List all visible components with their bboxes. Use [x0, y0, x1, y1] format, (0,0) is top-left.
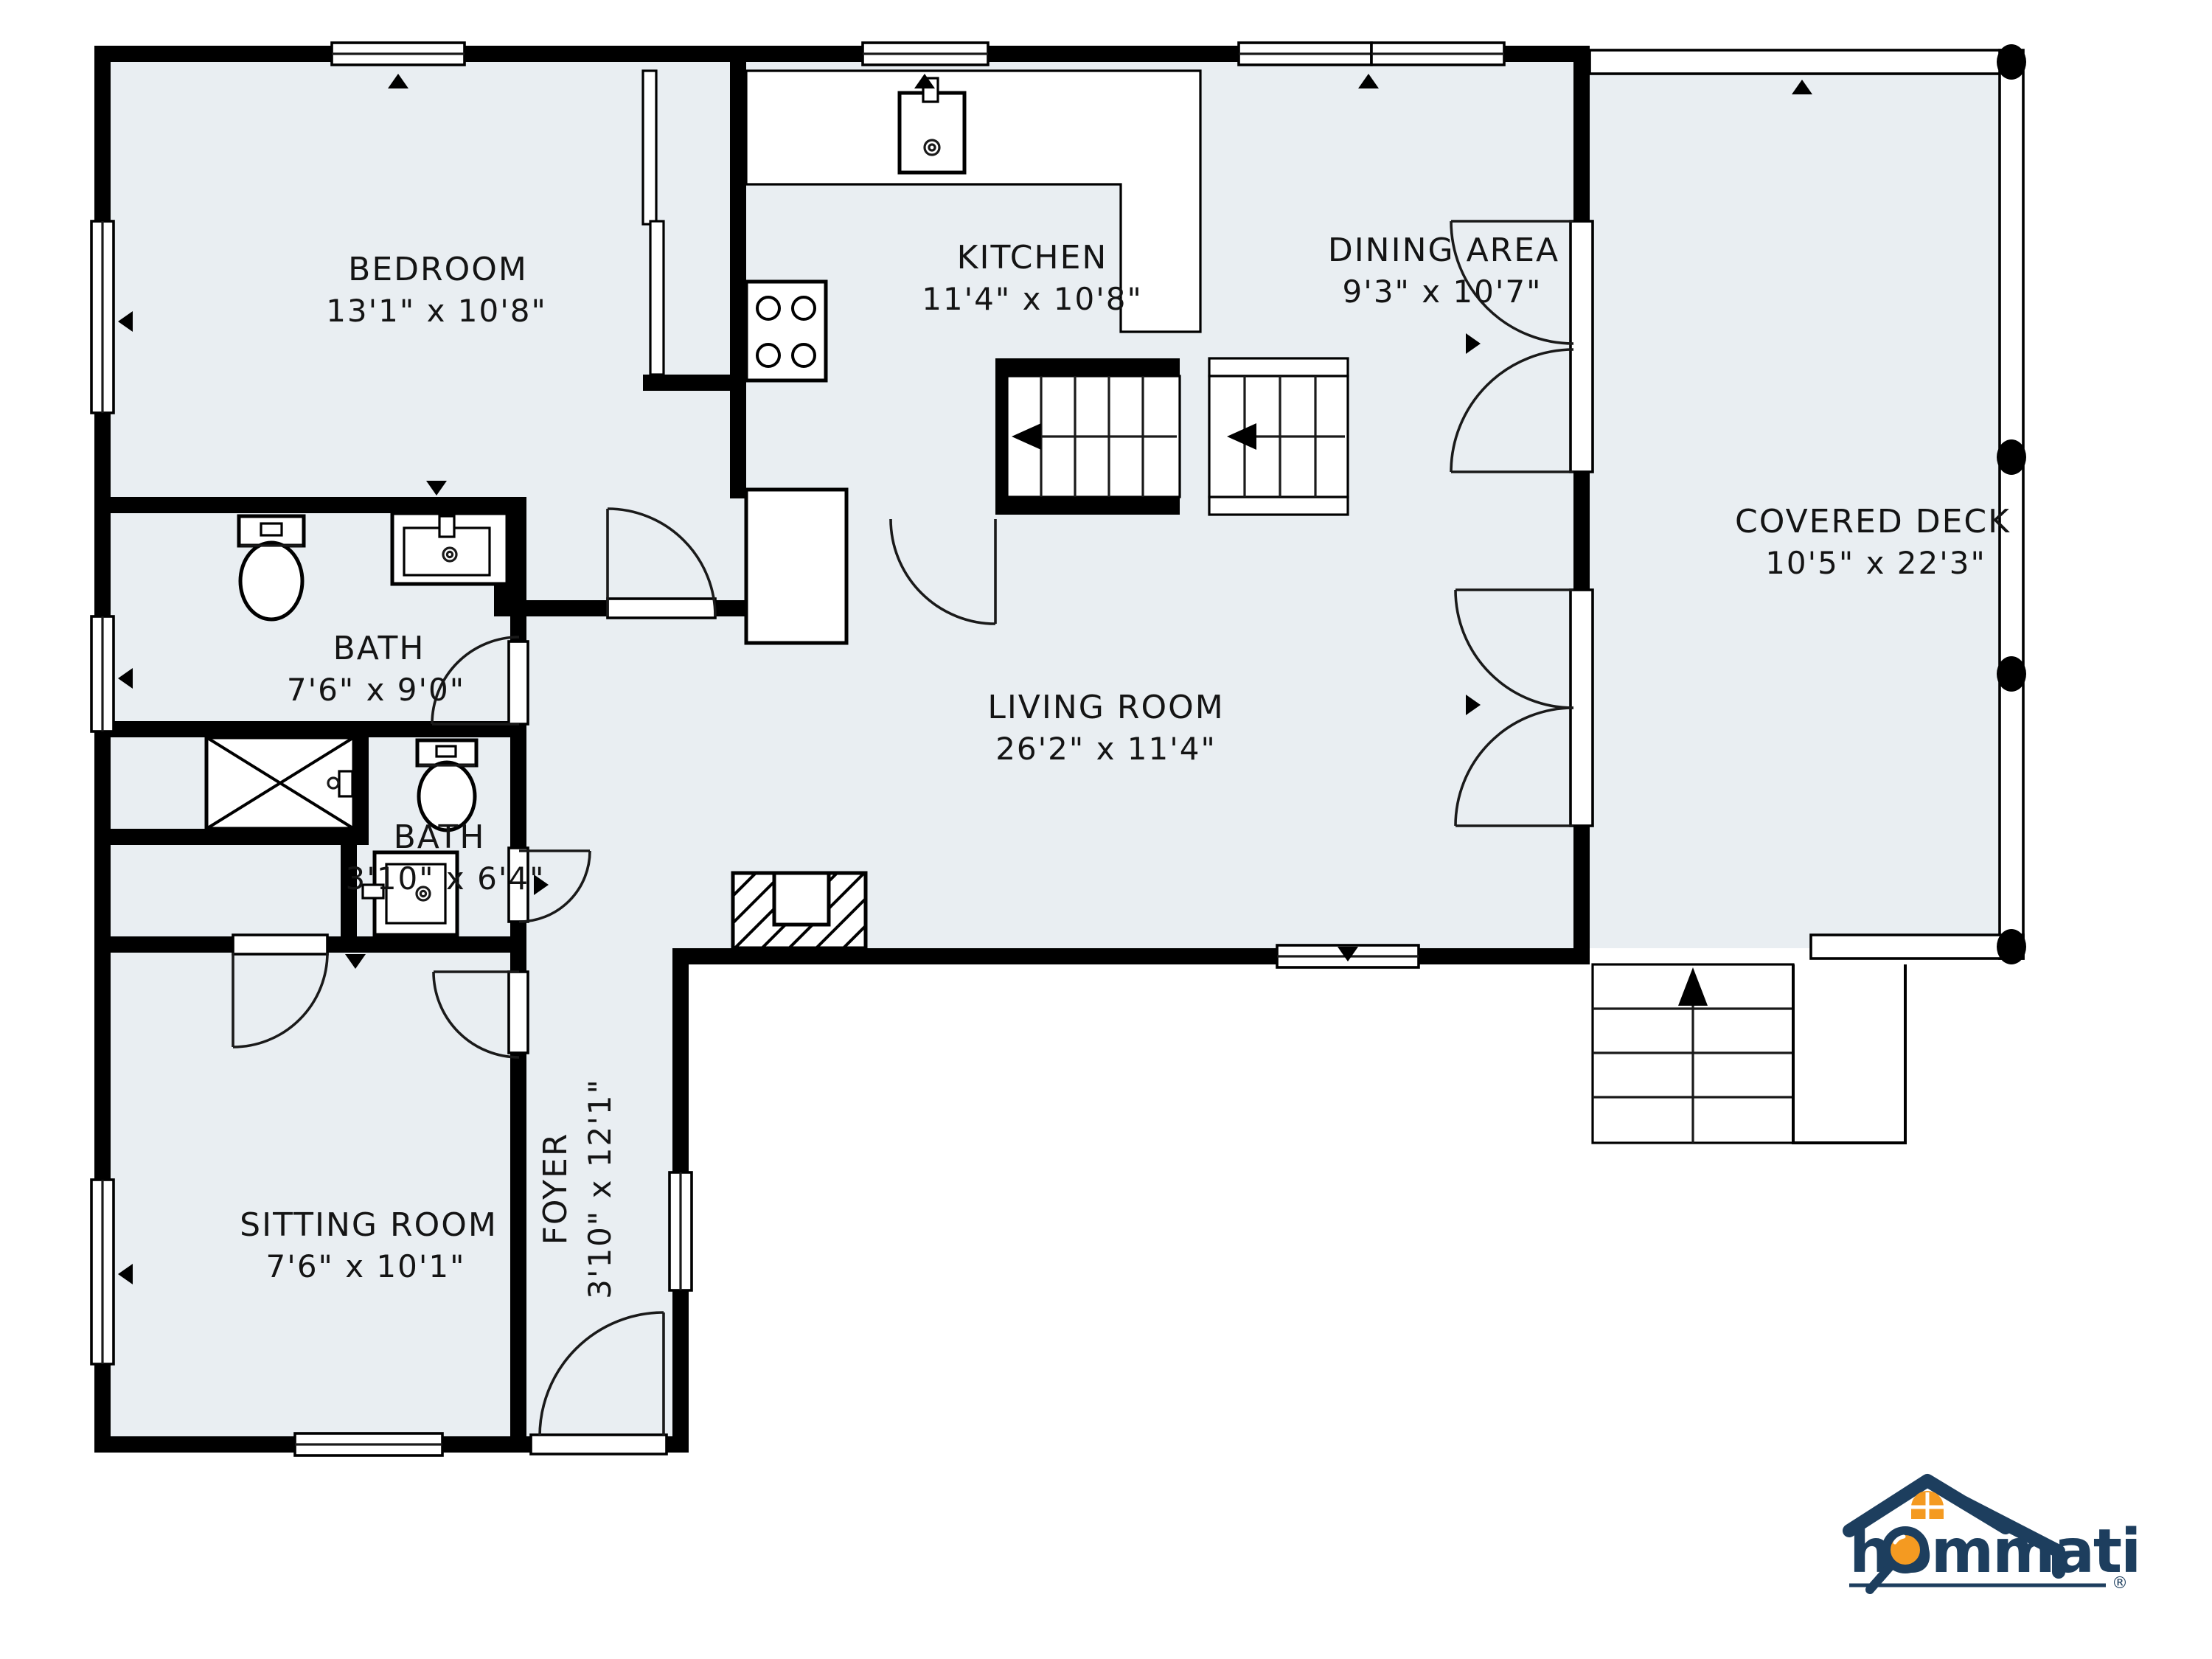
window-icon [332, 43, 465, 65]
foyer-dims: 3'10" x 12'1" [582, 1078, 618, 1299]
hommati-logo: hommati ® [1849, 1481, 2140, 1593]
floor-plan-canvas: BEDROOM 13'1" x 10'8" KITCHEN 11'4" x 10… [0, 0, 2212, 1659]
window-icon [91, 1180, 114, 1364]
shower-icon [206, 737, 354, 829]
deck-label: COVERED DECK [1735, 503, 2011, 540]
deck-post-icon [1997, 929, 2026, 964]
sitting-dims: 7'6" x 10'1" [266, 1248, 466, 1284]
bath1-label: BATH [333, 630, 425, 667]
foyer-label: FOYER [537, 1133, 574, 1245]
bath1-dims: 7'6" x 9'0" [287, 672, 465, 708]
sink-icon [900, 78, 964, 173]
fireplace-icon [733, 873, 866, 948]
kitchen-dims: 11'4" x 10'8" [922, 281, 1143, 317]
toilet-icon [417, 740, 476, 830]
bedroom-dims: 13'1" x 10'8" [326, 293, 547, 329]
window-icon [295, 1433, 442, 1455]
bath2-dims: 3'10" x 6'4" [346, 860, 546, 897]
bath2-label: BATH [394, 818, 486, 856]
deck-post-icon [1997, 656, 2026, 692]
window-icon [863, 43, 988, 65]
deck-dims: 10'5" x 22'3" [1765, 545, 1986, 581]
kitchen-label: KITCHEN [957, 239, 1108, 276]
deck-post-icon [1997, 439, 2026, 475]
deck-post-icon [1997, 44, 2026, 80]
window-icon [91, 616, 114, 731]
deck-stairs-icon [1593, 964, 1905, 1143]
toilet-icon [239, 516, 304, 619]
dining-dims: 9'3" x 10'7" [1343, 274, 1543, 310]
refrigerator-icon [746, 490, 846, 643]
logo-registered-mark: ® [2112, 1574, 2128, 1593]
floor-plan-page: BEDROOM 13'1" x 10'8" KITCHEN 11'4" x 10… [0, 0, 2212, 1659]
sink-icon [392, 513, 507, 584]
window-icon [669, 1172, 692, 1290]
staircase-icon [995, 358, 1348, 515]
living-label: LIVING ROOM [987, 689, 1224, 726]
living-dims: 26'2" x 11'4" [995, 731, 1217, 767]
bedroom-label: BEDROOM [348, 251, 528, 288]
window-icon [91, 221, 114, 413]
window-icon [1239, 43, 1371, 65]
stove-icon [746, 282, 826, 380]
window-icon [1371, 43, 1504, 65]
sitting-label: SITTING ROOM [240, 1206, 498, 1244]
dining-label: DINING AREA [1328, 232, 1559, 269]
